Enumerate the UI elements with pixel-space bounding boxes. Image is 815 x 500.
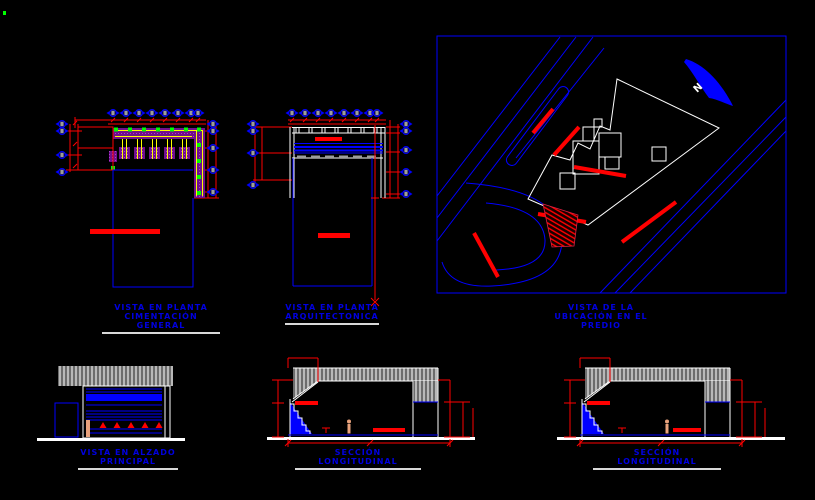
label-line: PRINCIPAL bbox=[78, 457, 178, 466]
north-arrow bbox=[684, 59, 733, 106]
person-body bbox=[348, 424, 351, 434]
person-body bbox=[666, 424, 669, 434]
foundation-axis-lines bbox=[115, 130, 203, 196]
red-street-marks bbox=[474, 109, 676, 277]
stage-band bbox=[294, 150, 383, 152]
architectural-plan-label: VISTA EN PLANTA ARQUITECTONICA bbox=[285, 303, 379, 325]
right-pier bbox=[165, 386, 170, 438]
red-marker-bar bbox=[295, 401, 318, 405]
site-location-label: VISTA DE LA UBICACIÓN EN EL PREDIO bbox=[536, 303, 666, 332]
stage-band bbox=[294, 146, 383, 148]
red-marker-bar bbox=[587, 401, 610, 405]
red-marker-bar bbox=[90, 229, 160, 234]
dimension-ticks bbox=[73, 118, 200, 168]
cul-de-sac-loop bbox=[442, 183, 562, 286]
label-line: VISTA EN PLANTA bbox=[285, 303, 379, 312]
label-line: CIMENTACIÓN GENERAL bbox=[102, 312, 220, 330]
label-line: SECCIÓN LONGITUDINAL bbox=[593, 448, 721, 466]
longitudinal-section-b bbox=[557, 358, 785, 447]
red-marker-bar bbox=[315, 137, 342, 141]
cad-drawing: N bbox=[0, 0, 815, 500]
rear-wall-hatch bbox=[705, 381, 730, 402]
section-b-label: SECCIÓN LONGITUDINAL bbox=[593, 448, 721, 470]
label-line: VISTA EN PLANTA bbox=[102, 303, 220, 312]
ground-line bbox=[267, 437, 475, 440]
courtyard-outline bbox=[113, 170, 193, 287]
project-site-hatch bbox=[543, 204, 578, 247]
foundation-plan-view bbox=[56, 110, 220, 287]
label-line: UBICACIÓN EN EL PREDIO bbox=[536, 312, 666, 330]
front-elevation-label: VISTA EN ALZADO PRINCIPAL bbox=[78, 448, 178, 470]
person-figure bbox=[86, 420, 90, 437]
dimension-lines bbox=[253, 120, 400, 198]
site-plan-view: N bbox=[437, 36, 786, 293]
building-outline bbox=[83, 386, 165, 438]
architectural-plan-view bbox=[247, 110, 413, 306]
label-line: SECCIÓN LONGITUDINAL bbox=[295, 448, 421, 466]
left-annex-outline bbox=[78, 127, 113, 170]
courtyard-outline bbox=[293, 158, 372, 286]
section-a-label: SECCIÓN LONGITUDINAL bbox=[295, 448, 421, 470]
cad-drawing-canvas: N bbox=[0, 0, 815, 500]
front-elevation-view bbox=[37, 366, 185, 441]
furniture-mark bbox=[322, 428, 330, 433]
red-marker-bar bbox=[318, 233, 350, 238]
stray-green-mark bbox=[3, 11, 6, 15]
roof-parapet-hatch bbox=[58, 366, 173, 386]
person-head bbox=[347, 420, 351, 424]
furniture-mark bbox=[618, 428, 626, 433]
stage-lines bbox=[294, 144, 383, 154]
footings bbox=[109, 147, 190, 162]
red-marker-bar bbox=[673, 428, 701, 432]
label-line: VISTA EN ALZADO bbox=[78, 448, 178, 457]
label-line: VISTA DE LA bbox=[536, 303, 666, 312]
red-marker-bar bbox=[373, 428, 405, 432]
foundation-plan-label: VISTA EN PLANTA CIMENTACIÓN GENERAL bbox=[102, 303, 220, 334]
door-arrows bbox=[100, 422, 163, 428]
roads bbox=[437, 37, 786, 293]
label-line: ARQUITECTONICA bbox=[285, 312, 379, 321]
longitudinal-section-a bbox=[267, 358, 475, 447]
annex-outline bbox=[55, 403, 78, 437]
shutter-band bbox=[86, 394, 162, 401]
site-plan-border bbox=[437, 36, 786, 293]
person-head bbox=[665, 420, 669, 424]
ground-line bbox=[37, 438, 185, 441]
rear-wall-hatch bbox=[413, 381, 438, 402]
